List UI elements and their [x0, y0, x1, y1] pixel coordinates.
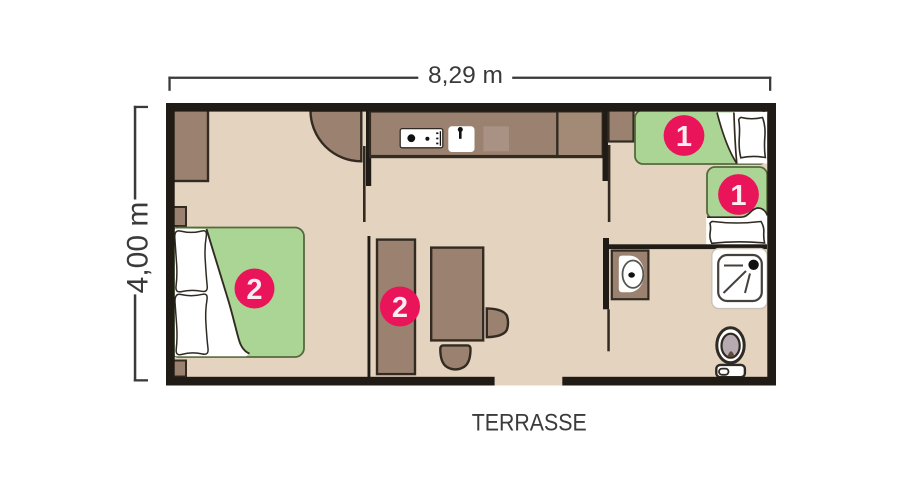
- svg-text:2: 2: [392, 292, 408, 324]
- svg-text:1: 1: [676, 121, 692, 153]
- svg-text:4,00 m: 4,00 m: [122, 202, 155, 294]
- svg-text:1: 1: [730, 180, 746, 212]
- svg-text:2: 2: [246, 274, 262, 306]
- svg-text:TERRASSE: TERRASSE: [472, 409, 587, 436]
- svg-text:8,29 m: 8,29 m: [428, 62, 503, 89]
